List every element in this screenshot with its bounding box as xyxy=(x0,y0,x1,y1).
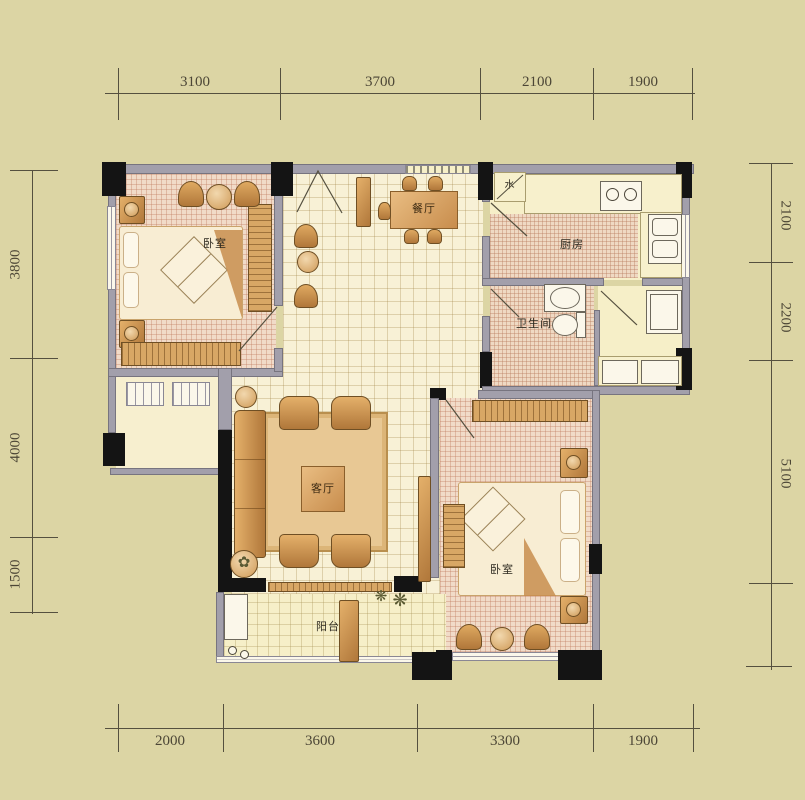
stool xyxy=(294,284,318,308)
dim-tick xyxy=(593,704,594,752)
wall-bath-left xyxy=(482,316,490,352)
knob-icon xyxy=(240,650,249,659)
dim-tick xyxy=(693,704,694,752)
dim-tick xyxy=(692,68,693,120)
dining-chair xyxy=(427,229,442,244)
water-meter-label: 水 xyxy=(498,180,522,192)
pillow xyxy=(123,272,139,308)
dim-tick xyxy=(118,704,119,752)
wall-bedroom1-bottom xyxy=(108,368,283,377)
dining-chair xyxy=(428,176,443,191)
lamp-icon xyxy=(124,326,139,341)
lamp-icon xyxy=(566,455,581,470)
column-balcony-se xyxy=(412,652,452,680)
water-heater xyxy=(224,594,248,640)
bedroom-left-window xyxy=(107,206,116,290)
column-corridor xyxy=(480,352,492,388)
knob-icon xyxy=(228,646,237,655)
stool xyxy=(524,624,550,650)
dining-chair xyxy=(404,229,419,244)
room-label-balcony: 阳台 xyxy=(308,621,348,633)
stool-table xyxy=(297,251,319,273)
kitchen-right-window xyxy=(681,214,690,278)
room-label-dining: 餐厅 xyxy=(404,203,444,215)
bay-window-sill xyxy=(126,382,164,406)
column-balcony-nw xyxy=(218,578,266,592)
column-alcove-left xyxy=(103,433,125,466)
dim-tick xyxy=(746,666,792,667)
dim-right-3: 5100 xyxy=(777,444,794,504)
dim-tick xyxy=(749,360,793,361)
dim-bottom-1: 2000 xyxy=(140,733,200,750)
stool xyxy=(456,624,482,650)
stool xyxy=(294,224,318,248)
side-table xyxy=(235,386,257,408)
closet xyxy=(248,204,272,312)
dim-bottom-3: 3300 xyxy=(475,733,535,750)
dim-line-bottom xyxy=(105,728,700,729)
wall-balcony-left xyxy=(216,592,224,660)
floor-plan-page: 水 ✿ ❋ ❋ 卧室 餐厅 厨房 卫生间 客厅 卧室 阳台 xyxy=(0,0,805,800)
shower-inner xyxy=(650,294,678,330)
washer xyxy=(602,360,638,384)
dim-tick xyxy=(10,170,58,171)
dim-line-left xyxy=(32,170,33,614)
burner-icon xyxy=(624,188,637,201)
dim-tick xyxy=(749,163,793,164)
dim-right-2: 2200 xyxy=(777,288,794,348)
dining-window xyxy=(405,165,471,174)
room-label-kitchen: 厨房 xyxy=(552,239,592,251)
stool-table xyxy=(490,627,514,651)
flower-icon: ❋ xyxy=(372,589,390,605)
column-bedroom2-right xyxy=(589,544,602,574)
bedroom2-window xyxy=(452,652,560,661)
armchair xyxy=(279,396,319,430)
dim-tick xyxy=(10,612,58,613)
dim-tick xyxy=(417,704,418,752)
column-top-mid xyxy=(271,162,293,196)
room-label-bedroom-top: 卧室 xyxy=(195,238,235,250)
dim-line-right xyxy=(771,163,772,670)
sink-basin xyxy=(652,218,678,236)
dresser xyxy=(443,504,465,568)
dim-bottom-2: 3600 xyxy=(290,733,350,750)
column-top-left xyxy=(102,162,126,196)
dim-top-4: 1900 xyxy=(613,74,673,91)
room-label-bathroom: 卫生间 xyxy=(506,318,562,330)
room-label-bedroom-bottom: 卧室 xyxy=(482,564,522,576)
flower-icon: ❋ xyxy=(390,592,410,608)
bay-window-sill xyxy=(172,382,210,406)
dim-right-1: 2100 xyxy=(777,186,794,246)
dim-tick xyxy=(749,583,793,584)
dining-chair xyxy=(378,202,391,220)
chair xyxy=(234,181,260,207)
chair xyxy=(178,181,204,207)
dim-tick xyxy=(10,358,58,359)
shoe-cabinet xyxy=(356,177,371,227)
pillow xyxy=(123,232,139,268)
wall-top xyxy=(104,164,694,174)
washer xyxy=(641,360,679,384)
wall-bedroom2-right xyxy=(592,390,600,654)
wardrobe xyxy=(472,400,588,422)
dim-left-1: 3800 xyxy=(8,235,25,295)
plant-icon: ✿ xyxy=(233,555,255,571)
dim-tick xyxy=(593,68,594,120)
dim-tick xyxy=(118,68,119,120)
dining-chair xyxy=(402,176,417,191)
dim-tick xyxy=(280,68,281,120)
column-bedroom2-se xyxy=(558,650,602,680)
wall-bedroom1-right-lower xyxy=(274,348,283,372)
dim-top-2: 3700 xyxy=(350,74,410,91)
tv-cabinet xyxy=(418,476,431,582)
dim-bottom-4: 1900 xyxy=(613,733,673,750)
wall-living-west-upper xyxy=(218,368,232,430)
room-label-living: 客厅 xyxy=(302,483,344,495)
dim-tick xyxy=(749,262,793,263)
lamp-icon xyxy=(124,202,139,217)
armchair xyxy=(279,534,319,568)
armchair xyxy=(331,534,371,568)
dim-left-3: 1500 xyxy=(8,545,25,605)
blanket-fold xyxy=(524,538,556,596)
column-top-kitchen xyxy=(478,162,493,200)
wall-bedroom2-top xyxy=(478,390,600,399)
dim-top-3: 2100 xyxy=(507,74,567,91)
sofa xyxy=(234,410,266,558)
wall-living-bedroom2-divider xyxy=(430,398,439,578)
dim-tick xyxy=(480,68,481,120)
dim-tick xyxy=(10,537,58,538)
burner-icon xyxy=(606,188,619,201)
lamp-icon xyxy=(566,602,581,617)
dim-top-1: 3100 xyxy=(165,74,225,91)
wall-alcove-bottom xyxy=(110,468,220,475)
sink-basin xyxy=(652,240,678,258)
armchair xyxy=(331,396,371,430)
dim-tick xyxy=(223,704,224,752)
wardrobe xyxy=(121,342,241,366)
dim-line-top xyxy=(105,93,695,94)
pillow xyxy=(560,490,580,534)
pillow xyxy=(560,538,580,582)
bathroom-sink xyxy=(550,287,580,309)
dim-left-2: 4000 xyxy=(8,418,25,478)
small-round-table xyxy=(206,184,232,210)
